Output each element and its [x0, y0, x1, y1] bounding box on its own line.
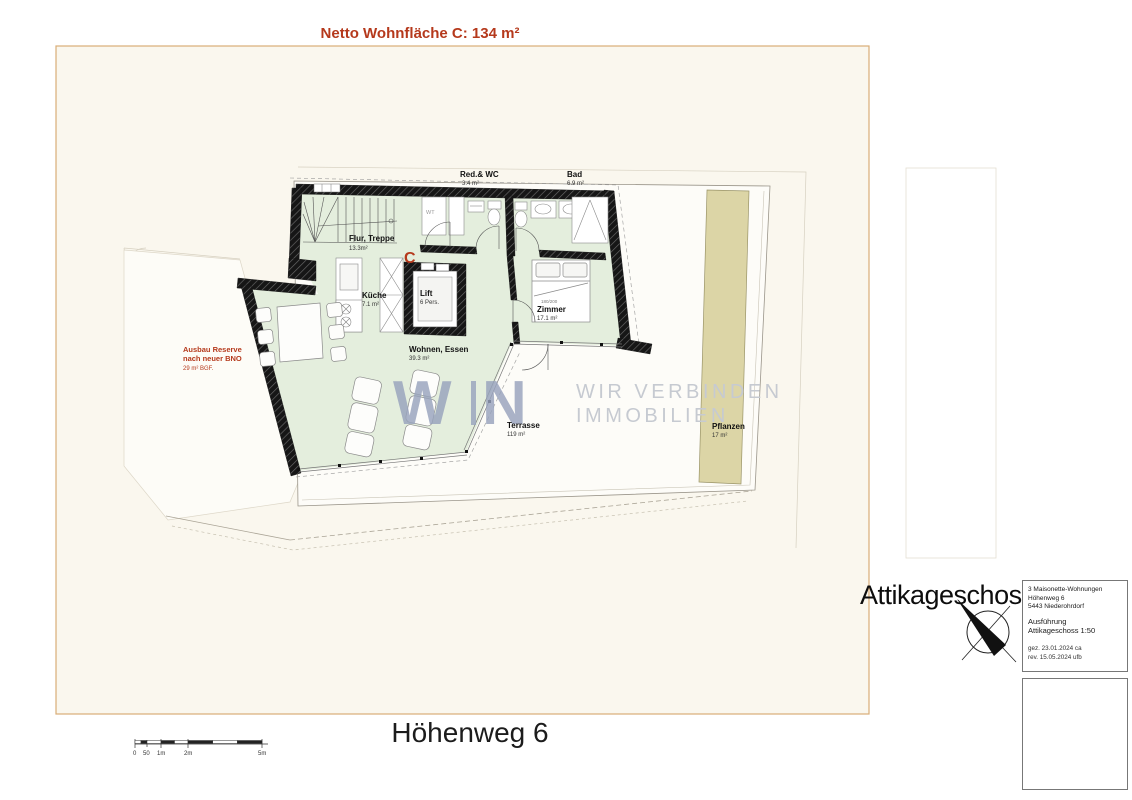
- scale-label-50: 50: [143, 751, 150, 757]
- label-wohnen-name: Wohnen, Essen: [409, 345, 469, 354]
- label-flur-area: 13.3m²: [349, 246, 368, 252]
- planter-strip: [699, 190, 749, 484]
- label-bed-size: 180/200: [541, 299, 558, 304]
- label-flur-name: Flur, Treppe: [349, 234, 395, 243]
- revised-date: rev. 15.05.2024 ufb: [1028, 654, 1122, 663]
- drawn-date: gez. 23.01.2024 ca: [1028, 645, 1122, 654]
- label-ausbau-2: nach neuer BNO: [183, 354, 242, 363]
- adjacent-parcel-rect: [906, 168, 996, 558]
- watermark-logo-w: W: [393, 369, 452, 438]
- sheet-label: Attikageschoss 1:50: [1028, 626, 1122, 636]
- label-lift-capacity: 6 Pers.: [420, 300, 439, 306]
- floorplan-page: { "colors": { "accent_red": "#b5391c", "…: [0, 0, 1132, 800]
- label-terrasse-area: 119 m²: [507, 432, 525, 438]
- label-kueche-area: 7.1 m²: [362, 302, 379, 308]
- net-area-title: Netto Wohnfläche C: 134 m²: [270, 25, 570, 42]
- label-terrasse-name: Terrasse: [507, 421, 540, 430]
- watermark-logo-bar: [471, 381, 476, 425]
- label-kueche-name: Küche: [362, 291, 387, 300]
- label-ausbau-3: 29 m² BGF.: [183, 366, 214, 372]
- scale-label-5m: 5m: [258, 751, 266, 757]
- label-bad-name: Bad: [567, 170, 582, 179]
- floor-title: Attikageschoss: [860, 580, 1035, 611]
- label-zimmer-area: 17.1 m²: [537, 316, 557, 322]
- watermark-tagline-1: WIR VERBINDEN: [576, 381, 783, 403]
- label-lift-name: Lift: [420, 289, 433, 298]
- phase-label: Ausführung: [1028, 617, 1122, 627]
- scale-label-2m: 2m: [184, 751, 192, 757]
- unit-letter: C: [404, 250, 416, 267]
- label-bad-area: 6.9 m²: [567, 181, 584, 187]
- window: [314, 184, 340, 192]
- label-wohnen-area: 39.3 m²: [409, 356, 429, 362]
- project-line-1: 3 Maisonette-Wohnungen: [1028, 586, 1122, 595]
- label-ausbau-1: Ausbau Reserve: [183, 345, 242, 354]
- scale-label-0: 0: [133, 751, 137, 757]
- watermark-tagline-2: IMMOBILIEN: [576, 405, 729, 427]
- scale-bar: 0 50 1m 2m 5m: [133, 739, 268, 757]
- street-title: Höhenweg 6: [330, 717, 610, 749]
- scale-label-1m: 1m: [157, 751, 165, 757]
- title-block-empty-box: [1022, 678, 1128, 790]
- label-redwc-area: 3.4 m²: [462, 181, 479, 187]
- project-line-3: 5443 Niederohrdorf: [1028, 603, 1122, 612]
- dining-set: [255, 302, 346, 366]
- lift-shaft: [404, 262, 466, 336]
- label-pflanzen-area: 17 m²: [712, 433, 727, 439]
- label-pflanzen-name: Pflanzen: [712, 422, 745, 431]
- title-block-info-box: 3 Maisonette-Wohnungen Höhenweg 6 5443 N…: [1022, 580, 1128, 672]
- label-zimmer-name: Zimmer: [537, 305, 566, 314]
- label-redwc-name: Red.& WC: [460, 170, 499, 179]
- title-block: 3 Maisonette-Wohnungen Höhenweg 6 5443 N…: [1022, 580, 1128, 790]
- project-line-2: Höhenweg 6: [1028, 595, 1122, 604]
- label-wt: WT: [426, 210, 435, 216]
- site-plan-svg: W N WIR VERBINDEN IMMOBILIEN Red.& WC 3.…: [0, 0, 1132, 800]
